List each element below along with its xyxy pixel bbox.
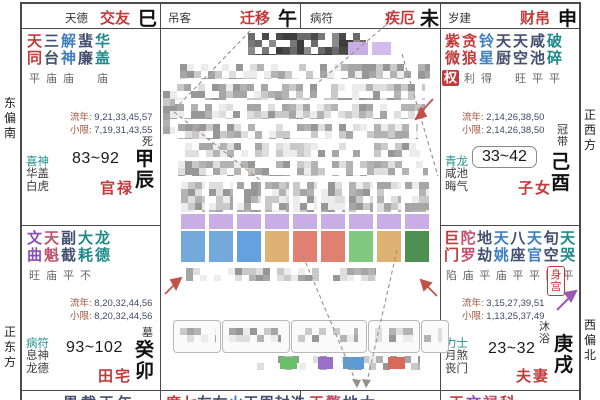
changsheng-stage: 沐浴 bbox=[539, 321, 552, 345]
censor-block bbox=[419, 196, 426, 203]
censor-block bbox=[312, 268, 319, 275]
censor-block bbox=[418, 363, 420, 370]
clipped-star-char: 诰 bbox=[289, 392, 306, 400]
censor-block bbox=[383, 64, 390, 71]
censor-block bbox=[402, 131, 409, 138]
censor-block bbox=[282, 98, 289, 100]
censor-block bbox=[278, 78, 285, 79]
censor-block bbox=[254, 104, 261, 111]
censor-block bbox=[312, 275, 319, 281]
censor-block bbox=[327, 71, 334, 78]
star-brightness: 利 bbox=[461, 70, 478, 86]
censor-block bbox=[353, 150, 360, 157]
censor-block bbox=[191, 104, 198, 111]
censor-block bbox=[188, 189, 195, 196]
censor-block bbox=[195, 196, 202, 203]
censor-block bbox=[265, 203, 272, 210]
censor-block bbox=[416, 124, 418, 131]
censor-block bbox=[283, 47, 290, 54]
censor-block bbox=[324, 104, 331, 111]
censor-block bbox=[268, 91, 275, 98]
censor-block bbox=[311, 131, 318, 138]
censor-block bbox=[286, 189, 289, 196]
censor-block bbox=[215, 78, 222, 79]
censor-block bbox=[394, 91, 401, 98]
censor-block bbox=[247, 84, 254, 91]
censor-block bbox=[293, 182, 300, 189]
clipped-star-char: 太 bbox=[359, 392, 376, 400]
star-brightness: 陷 bbox=[443, 267, 460, 283]
censor-block bbox=[359, 84, 366, 91]
star-brightness: 旺 bbox=[512, 70, 529, 86]
censor-block bbox=[380, 104, 387, 111]
censor-block bbox=[320, 71, 327, 78]
censor-block bbox=[276, 131, 283, 138]
clipped-star-char: 天 bbox=[308, 392, 325, 400]
censor-block bbox=[209, 210, 216, 212]
censor-block bbox=[242, 268, 249, 275]
censor-block bbox=[185, 131, 192, 138]
censor-block bbox=[282, 91, 289, 98]
censor-block bbox=[249, 275, 256, 281]
censor-block bbox=[184, 84, 191, 91]
censor-block bbox=[381, 138, 388, 139]
censor-block bbox=[276, 143, 283, 150]
palace-shen-branch: 申 bbox=[558, 4, 577, 31]
palace-shen-name[interactable]: 财帛 bbox=[520, 7, 550, 28]
censor-block bbox=[370, 196, 373, 203]
palace-wu-god: 吊客 bbox=[168, 10, 191, 26]
censor-block bbox=[185, 168, 192, 175]
censor-block bbox=[300, 210, 307, 212]
censor-block bbox=[248, 175, 255, 176]
censor-block bbox=[422, 104, 425, 111]
censor-block bbox=[353, 33, 360, 40]
censor-block bbox=[412, 210, 419, 212]
censor-block bbox=[290, 150, 297, 157]
censor-block bbox=[319, 328, 326, 335]
censor-block bbox=[346, 168, 353, 175]
censor-block bbox=[237, 210, 244, 212]
star-brightness: 不 bbox=[77, 267, 94, 283]
censor-block bbox=[398, 196, 401, 203]
palace-name-子女[interactable]: 子女 bbox=[518, 177, 552, 198]
censor-block bbox=[234, 124, 241, 131]
censor-block bbox=[191, 118, 198, 119]
censor-block bbox=[332, 40, 339, 47]
censor-block bbox=[213, 168, 220, 175]
censor-block bbox=[303, 111, 310, 118]
censor-block bbox=[384, 210, 391, 212]
grid-line bbox=[160, 2, 161, 400]
clipped-star-char: 天 bbox=[448, 392, 465, 400]
xiaoxian-ages: 小限: 1,13,25,37,49 bbox=[462, 308, 544, 322]
censor-block bbox=[328, 210, 335, 212]
censor-block bbox=[289, 98, 296, 100]
censor-block bbox=[296, 84, 303, 91]
censored-toolbar-button[interactable] bbox=[173, 320, 221, 353]
censor-block bbox=[311, 175, 318, 176]
censor-block bbox=[271, 64, 278, 71]
censor-block bbox=[261, 98, 268, 100]
censor-block bbox=[331, 91, 338, 98]
censor-block bbox=[313, 78, 320, 79]
censor-block bbox=[367, 161, 374, 168]
censor-block bbox=[213, 138, 220, 139]
censor-block bbox=[312, 335, 319, 342]
palace-name-田宅[interactable]: 田宅 bbox=[98, 365, 132, 386]
censor-block bbox=[180, 64, 187, 71]
censor-block bbox=[230, 189, 233, 196]
censor-block bbox=[229, 335, 236, 342]
censor-block bbox=[181, 210, 188, 212]
censor-block bbox=[248, 168, 255, 175]
year-god-label: 晦气 bbox=[445, 181, 468, 193]
censor-block bbox=[283, 143, 290, 150]
censor-chip bbox=[372, 42, 391, 55]
censor-block bbox=[199, 138, 206, 139]
censor-block bbox=[278, 71, 285, 78]
year-god-label: 息神 bbox=[26, 350, 49, 362]
censor-block bbox=[388, 168, 395, 175]
censor-block bbox=[261, 84, 268, 91]
censor-block bbox=[310, 111, 317, 118]
censor-block bbox=[398, 203, 401, 210]
censor-block bbox=[170, 91, 177, 98]
censor-block bbox=[363, 189, 370, 196]
censor-block bbox=[317, 111, 324, 118]
censor-block bbox=[209, 182, 216, 189]
censor-block bbox=[272, 189, 279, 196]
star-铃星: 铃星 bbox=[478, 33, 495, 67]
censor-block bbox=[339, 54, 346, 55]
censor-block bbox=[387, 98, 394, 100]
decade-band-highlight bbox=[265, 214, 289, 229]
censor-block bbox=[318, 175, 325, 176]
censor-block bbox=[338, 84, 345, 91]
censor-block bbox=[374, 124, 381, 131]
censor-block bbox=[206, 143, 213, 150]
censor-block bbox=[276, 124, 283, 131]
year-god-label: 丧门 bbox=[445, 363, 468, 375]
censor-block bbox=[377, 196, 384, 203]
censor-block bbox=[265, 182, 272, 189]
liunian-ages: 流年: 9,21,33,45,57 bbox=[70, 109, 152, 123]
censor-block bbox=[353, 175, 360, 176]
censor-block bbox=[422, 118, 425, 119]
censor-block bbox=[424, 335, 431, 342]
censor-block bbox=[243, 71, 250, 78]
censor-block bbox=[342, 203, 345, 210]
censor-block bbox=[355, 64, 362, 71]
censor-block bbox=[255, 138, 262, 139]
censor-block bbox=[349, 203, 356, 210]
censor-block bbox=[251, 196, 258, 203]
censor-block bbox=[177, 111, 184, 118]
censor-block bbox=[220, 131, 227, 138]
censor-block bbox=[335, 189, 342, 196]
censor-block bbox=[410, 328, 413, 335]
grid-line bbox=[20, 225, 160, 226]
xiaoxian-ages: 小限: 7,19,31,43,55 bbox=[70, 122, 152, 136]
censor-block bbox=[255, 168, 262, 175]
censor-block bbox=[377, 203, 384, 210]
censor-block bbox=[192, 175, 199, 176]
censor-block bbox=[214, 275, 221, 281]
star-brightness: 庙 bbox=[460, 267, 477, 283]
decade-element-block bbox=[181, 231, 205, 262]
censor-block bbox=[234, 131, 241, 138]
palace-wei-name[interactable]: 疾厄 bbox=[385, 7, 415, 28]
censor-block bbox=[212, 111, 219, 118]
liunian-ages: 流年: 3,15,27,39,51 bbox=[462, 295, 544, 309]
censor-block bbox=[338, 98, 345, 100]
censor-block bbox=[250, 71, 257, 78]
star-brightness: 庙 bbox=[43, 267, 60, 283]
censor-block bbox=[318, 168, 325, 175]
year-god-label: 龙德 bbox=[26, 363, 49, 375]
censor-block bbox=[352, 91, 359, 98]
censor-block bbox=[370, 203, 373, 210]
censor-block bbox=[415, 118, 422, 119]
censor-block bbox=[283, 131, 290, 138]
censor-block bbox=[236, 335, 243, 342]
censor-block bbox=[206, 138, 213, 139]
censor-block bbox=[185, 161, 192, 168]
censor-block bbox=[376, 356, 383, 363]
censor-block bbox=[416, 161, 423, 168]
censor-block bbox=[408, 111, 415, 118]
decade-band-highlight bbox=[237, 214, 261, 229]
censor-block bbox=[341, 78, 348, 79]
censor-block bbox=[199, 175, 206, 176]
palace-name-官禄[interactable]: 官禄 bbox=[100, 177, 134, 198]
censor-block bbox=[177, 84, 184, 91]
censor-block bbox=[418, 356, 420, 363]
body-palace-badge: 身宫 bbox=[547, 266, 565, 296]
censor-block bbox=[361, 275, 368, 281]
censor-block bbox=[311, 124, 318, 131]
censor-block bbox=[360, 161, 367, 168]
censor-block bbox=[307, 210, 314, 212]
star-brightness: 庙 bbox=[493, 267, 510, 283]
censor-block bbox=[200, 275, 207, 281]
censor-block bbox=[303, 98, 310, 100]
censor-block bbox=[388, 138, 395, 139]
decade-age-range-selected[interactable]: 33~42 bbox=[472, 146, 537, 168]
censor-chip bbox=[348, 42, 368, 55]
censor-block bbox=[229, 71, 236, 78]
censor-block bbox=[304, 33, 311, 40]
censor-block bbox=[340, 275, 347, 281]
censor-block bbox=[388, 175, 395, 176]
censor-block bbox=[178, 161, 185, 168]
year-god-label: 月煞 bbox=[445, 350, 468, 362]
star-咸池: 咸池 bbox=[529, 33, 546, 67]
censor-block bbox=[361, 268, 368, 275]
censor-block bbox=[349, 210, 356, 212]
censor-block bbox=[297, 161, 304, 168]
censor-block bbox=[261, 91, 268, 98]
censor-block bbox=[233, 91, 240, 98]
star-陀罗: 陀罗 bbox=[460, 230, 477, 264]
censor-block bbox=[163, 106, 170, 113]
censor-block bbox=[426, 203, 429, 210]
clipped-star-char: 擎 bbox=[325, 392, 342, 400]
palace-wu-name[interactable]: 迁移 bbox=[240, 7, 270, 28]
palace-si-name[interactable]: 交友 bbox=[100, 7, 130, 28]
censor-block bbox=[306, 71, 313, 78]
censor-block bbox=[338, 111, 345, 118]
censor-block bbox=[325, 131, 332, 138]
decade-age-range: 23~32 bbox=[488, 340, 535, 358]
censor-block bbox=[410, 335, 413, 342]
censor-block bbox=[377, 210, 384, 212]
censor-block bbox=[332, 150, 339, 157]
censor-block bbox=[289, 118, 296, 119]
censor-block bbox=[195, 189, 202, 196]
censor-block bbox=[241, 131, 248, 138]
censor-block bbox=[377, 189, 384, 196]
censor-block bbox=[276, 33, 283, 40]
censor-block bbox=[194, 71, 201, 78]
censor-block bbox=[206, 161, 213, 168]
censor-block bbox=[359, 118, 366, 119]
censor-block bbox=[181, 196, 188, 203]
censor-block bbox=[283, 54, 290, 55]
censor-block bbox=[293, 210, 300, 212]
decade-element-block bbox=[349, 231, 373, 262]
censor-block bbox=[236, 328, 243, 335]
censor-block bbox=[349, 189, 356, 196]
censor-block bbox=[373, 118, 380, 119]
changsheng-stage: 死 bbox=[142, 136, 155, 148]
censor-block bbox=[241, 161, 248, 168]
censor-block bbox=[202, 210, 205, 212]
censor-block bbox=[185, 124, 192, 131]
censor-block bbox=[178, 168, 185, 175]
censor-block bbox=[276, 150, 283, 157]
decade-element-block bbox=[265, 231, 289, 262]
censor-block bbox=[352, 104, 359, 111]
censor-block bbox=[311, 40, 318, 47]
year-god-label: 青龙 bbox=[445, 156, 468, 168]
censor-block bbox=[362, 78, 369, 79]
censor-block bbox=[290, 33, 297, 40]
star-brightness: 平 bbox=[509, 267, 526, 283]
censor-chip bbox=[343, 357, 364, 369]
censor-block bbox=[194, 328, 201, 335]
censor-block bbox=[297, 124, 304, 131]
censor-block bbox=[304, 138, 311, 139]
censor-block bbox=[405, 182, 412, 189]
censor-block bbox=[181, 203, 188, 210]
censor-block bbox=[257, 363, 264, 370]
decade-band-highlight bbox=[209, 214, 233, 229]
palace-wu-branch: 午 bbox=[278, 4, 297, 31]
decade-element-block bbox=[377, 231, 401, 262]
censor-block bbox=[216, 196, 223, 203]
star-brightness: 旺 bbox=[26, 267, 43, 283]
decade-element-block bbox=[405, 231, 429, 262]
censor-block bbox=[163, 91, 170, 98]
censor-block bbox=[303, 104, 310, 111]
censor-block bbox=[380, 98, 387, 100]
censor-block bbox=[244, 189, 251, 196]
censor-chip bbox=[280, 357, 297, 369]
censor-block bbox=[297, 143, 304, 150]
censor-block bbox=[376, 71, 383, 78]
censor-block bbox=[213, 161, 220, 168]
censor-block bbox=[296, 111, 303, 118]
censor-block bbox=[223, 189, 230, 196]
censor-block bbox=[380, 118, 387, 119]
censor-block bbox=[394, 118, 401, 119]
censor-block bbox=[251, 189, 258, 196]
censor-block bbox=[401, 98, 408, 100]
censor-block bbox=[342, 210, 345, 212]
censor-block bbox=[366, 104, 373, 111]
censor-block bbox=[419, 189, 426, 196]
censor-block bbox=[339, 40, 346, 47]
censor-block bbox=[354, 335, 358, 342]
censor-block bbox=[304, 143, 311, 150]
censor-block bbox=[229, 328, 236, 335]
censor-block bbox=[213, 143, 220, 150]
censor-block bbox=[209, 189, 216, 196]
star-解神: 解神 bbox=[60, 33, 77, 67]
censor-block bbox=[306, 78, 313, 79]
star-天同: 天同 bbox=[26, 33, 43, 67]
censor-block bbox=[317, 118, 324, 119]
censor-block bbox=[275, 91, 282, 98]
censor-block bbox=[279, 203, 286, 210]
censor-block bbox=[223, 196, 230, 203]
censor-block bbox=[255, 40, 262, 47]
censor-block bbox=[248, 33, 255, 40]
censor-block bbox=[262, 54, 269, 55]
censor-block bbox=[423, 168, 428, 175]
censor-block bbox=[297, 40, 304, 47]
censor-block bbox=[304, 168, 311, 175]
censor-block bbox=[363, 182, 370, 189]
censor-block bbox=[178, 124, 185, 131]
censor-block bbox=[366, 84, 373, 91]
censor-block bbox=[180, 71, 187, 78]
censor-block bbox=[426, 182, 429, 189]
palace-name-夫妻[interactable]: 夫妻 bbox=[516, 365, 550, 386]
censor-block bbox=[193, 268, 200, 275]
censor-block bbox=[345, 111, 352, 118]
censor-block bbox=[297, 150, 304, 157]
censor-block bbox=[271, 335, 278, 342]
censor-block bbox=[277, 275, 284, 281]
star-brightness: 平 bbox=[529, 70, 546, 86]
censor-block bbox=[286, 210, 289, 212]
censor-block bbox=[272, 210, 279, 212]
stem-branch-庚戌: 庚戌 bbox=[553, 334, 574, 376]
censor-block bbox=[227, 175, 234, 176]
censor-block bbox=[298, 268, 305, 275]
censor-block bbox=[230, 196, 233, 203]
censor-block bbox=[310, 84, 317, 91]
censor-block bbox=[201, 78, 208, 79]
censor-block bbox=[279, 210, 286, 212]
censor-block bbox=[398, 210, 401, 212]
censor-block bbox=[353, 124, 360, 131]
censor-block bbox=[369, 356, 376, 363]
censor-block bbox=[401, 104, 408, 111]
